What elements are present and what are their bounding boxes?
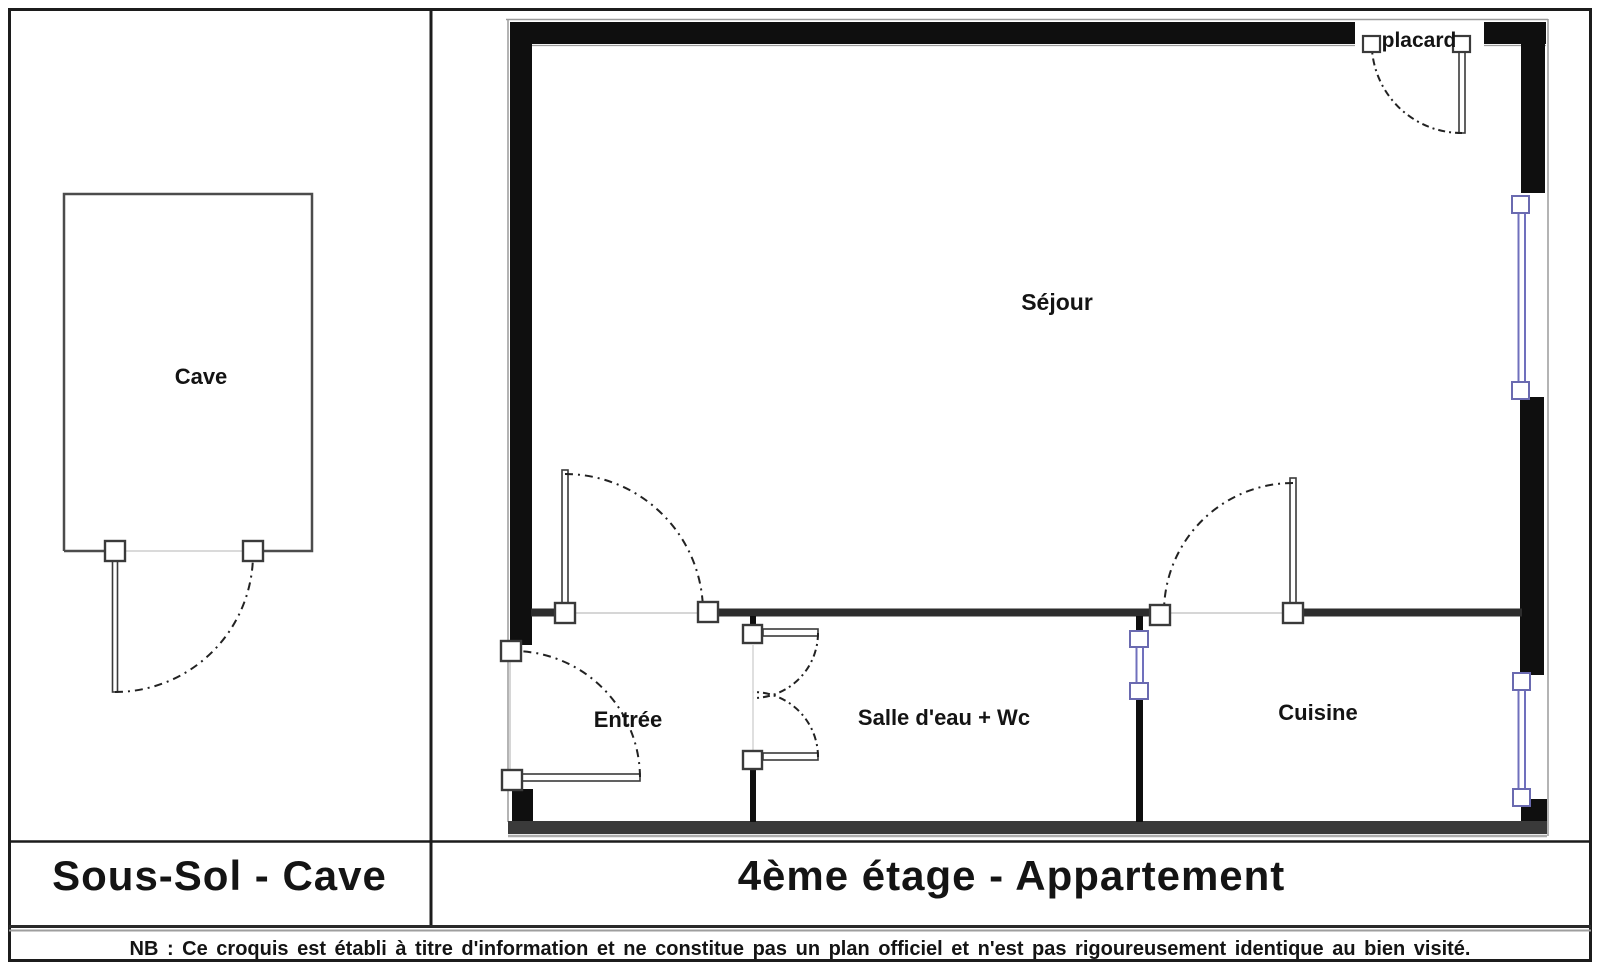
right-panel-title: 4ème étage - Appartement — [431, 852, 1592, 900]
disclaimer-note: NB : Ce croquis est établi à titre d'inf… — [8, 938, 1592, 961]
cuisine-room-label: Cuisine — [1238, 700, 1398, 726]
sheet-frame — [9, 10, 1591, 961]
cave-room-label: Cave — [121, 364, 281, 390]
sejour-door — [555, 470, 718, 623]
cuisine-partition — [1130, 616, 1148, 822]
sejour-window — [1512, 196, 1529, 399]
floorplan-linework — [0, 0, 1600, 966]
salle-eau-room-label: Salle d'eau + Wc — [824, 705, 1064, 731]
cuisine-window — [1513, 673, 1530, 806]
interior-wall-horizontal — [531, 609, 1522, 617]
salle-eau-doors — [743, 625, 818, 769]
cave-door — [105, 541, 263, 692]
salle-eau-partition — [750, 616, 756, 822]
placard-label: placard — [1374, 29, 1464, 53]
sejour-room-label: Séjour — [977, 289, 1137, 316]
entree-room-label: Entrée — [548, 707, 708, 733]
cuisine-door — [1150, 478, 1303, 625]
floorplan-sheet: Cave Séjour Entrée Salle d'eau + Wc Cuis… — [0, 0, 1600, 966]
left-panel-title: Sous-Sol - Cave — [8, 852, 431, 900]
